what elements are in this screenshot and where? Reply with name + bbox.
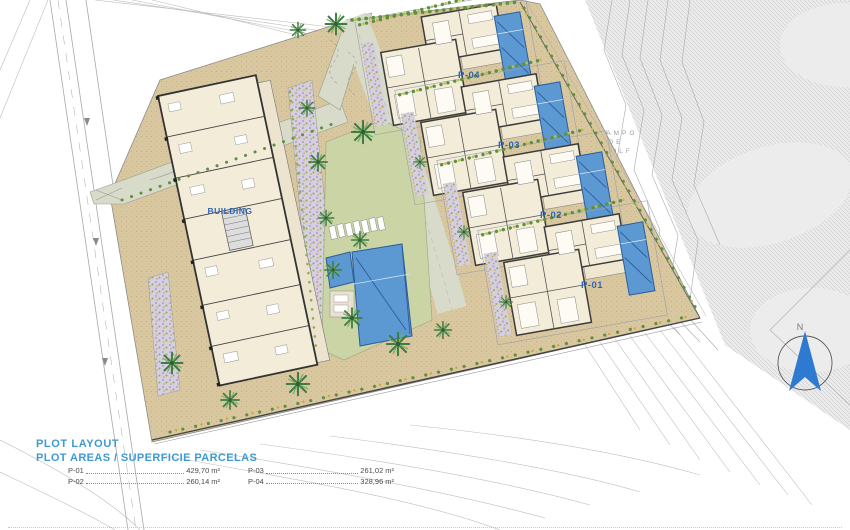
plot-area-value: 328,96 [360, 478, 383, 486]
villa-label-p02: P-02 [540, 210, 562, 221]
plot-area-value: 429,70 [186, 467, 209, 475]
plot-id: P-03 [248, 467, 264, 475]
leader-dots [86, 482, 184, 484]
legend-row-p01: P-01 429,70 m² [68, 467, 220, 475]
leader-dots [266, 472, 358, 474]
leader-dots [86, 472, 184, 474]
plot-layout-sheet: CAMPO DE GOLF [0, 0, 850, 530]
plot-id: P-04 [248, 478, 264, 486]
plot-area-unit: m² [385, 467, 394, 475]
villa-label-p04: P-04 [458, 70, 480, 81]
legend-row-p03: P-03 261,02 m² [248, 467, 394, 475]
plot-area-value: 261,02 [360, 467, 383, 475]
building-label: BUILDING [207, 206, 252, 216]
villa-label-p03: P-03 [498, 140, 520, 151]
plot-area-value: 260,14 [186, 478, 209, 486]
legend-row-p02: P-02 260,14 m² [68, 478, 220, 486]
plot-id: P-02 [68, 478, 84, 486]
leader-dots [266, 482, 358, 484]
north-label: N [797, 322, 804, 332]
legend-column-1: P-01 429,70 m² P-02 260,14 m² [68, 467, 220, 485]
legend-subtitle: PLOT AREAS / SUPERFICIE PARCELAS [36, 452, 257, 464]
site-plan-drawing: CAMPO DE GOLF [0, 0, 850, 530]
plot-area-unit: m² [385, 478, 394, 486]
plot-area-unit: m² [211, 478, 220, 486]
legend-row-p04: P-04 328,96 m² [248, 478, 394, 486]
legend-title: PLOT LAYOUT [36, 438, 119, 450]
plot-area-unit: m² [211, 467, 220, 475]
legend-column-2: P-03 261,02 m² P-04 328,96 m² [248, 467, 394, 485]
plot-id: P-01 [68, 467, 84, 475]
villa-label-p01: P-01 [581, 280, 603, 291]
sheet-border-line [8, 527, 842, 528]
